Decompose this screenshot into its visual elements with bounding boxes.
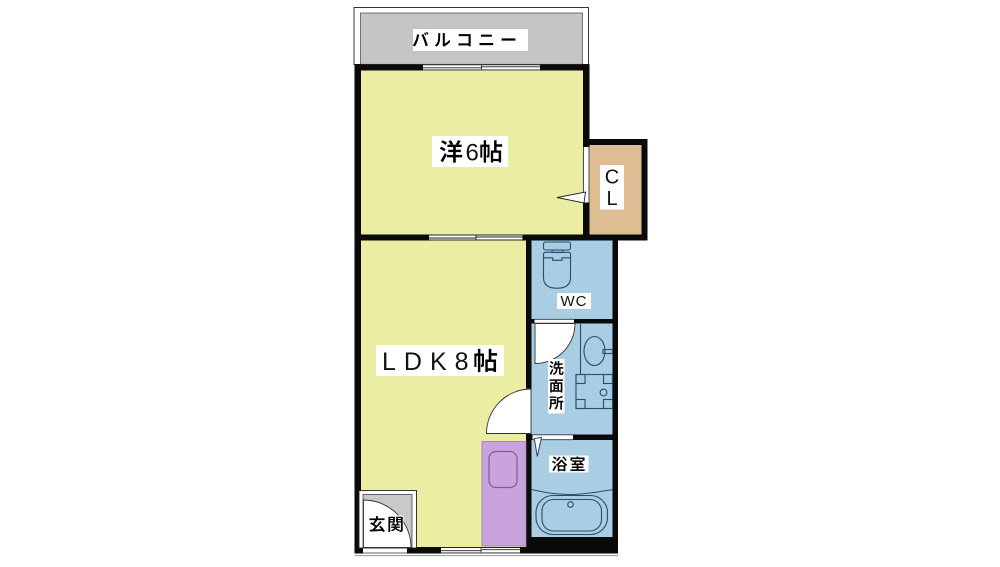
- svg-text:C: C: [605, 167, 619, 189]
- svg-text:L: L: [606, 188, 617, 210]
- svg-text:LDK8: LDK8: [382, 348, 477, 376]
- svg-text:WC: WC: [561, 293, 588, 310]
- svg-text:6: 6: [466, 140, 479, 167]
